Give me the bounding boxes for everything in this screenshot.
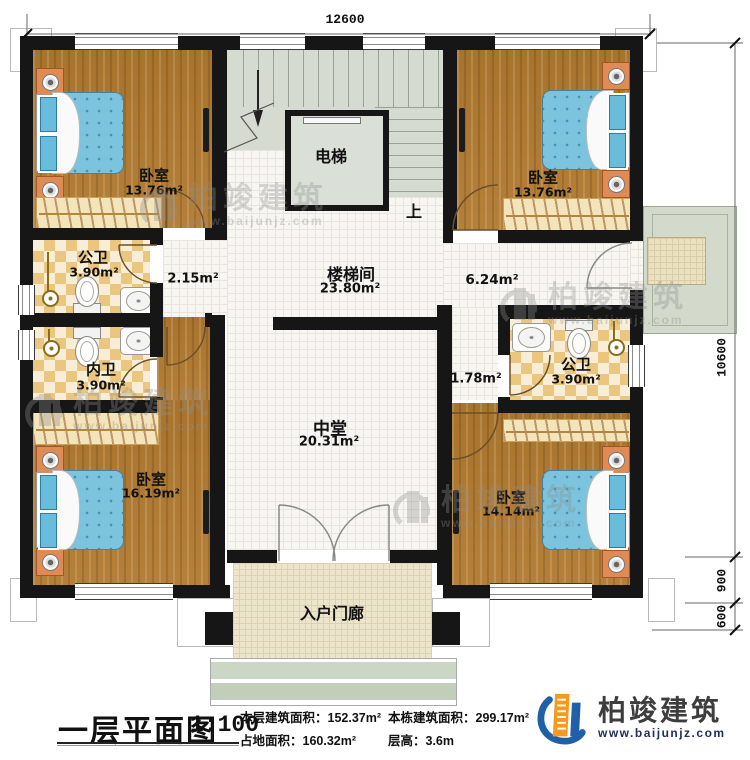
title-underline — [57, 742, 239, 747]
dimension-right: 10600 — [715, 328, 730, 388]
watermark-brand: 柏竣建筑 — [548, 283, 688, 313]
watermark: 柏竣建筑 www.baijunjz.com — [500, 282, 688, 328]
dimension-top: 12600 — [310, 12, 380, 27]
area-label: 2.15m² — [167, 272, 218, 287]
room-area: 20.31m² — [299, 435, 359, 450]
room-area: 16.19m² — [122, 486, 180, 501]
watermark-brand: 柏竣建筑 — [441, 486, 581, 516]
stat-total-area: 本栋建筑面积：299.17m² — [388, 707, 529, 726]
watermark-logo-icon — [393, 485, 433, 531]
watermark-url: www.baijunjz.com — [548, 313, 688, 327]
watermark-logo-icon — [25, 388, 65, 434]
company-name: 柏竣建筑 — [598, 696, 726, 727]
stat-floor-area: 本层建筑面积：152.37m² — [240, 707, 381, 726]
company-url: www.baijunjz.com — [598, 726, 726, 740]
watermark-brand: 柏竣建筑 — [73, 389, 213, 419]
watermark: 柏竣建筑 www.baijunjz.com — [25, 388, 213, 434]
stair-up-label: 上 — [406, 198, 422, 222]
floor-plan-page: 卧室 13.76m² 卧室 13.76m² 电梯 楼梯间 23.80m² 上 公… — [0, 0, 750, 760]
room-label: 入户门廊 — [300, 600, 364, 624]
watermark-logo-icon — [500, 282, 540, 328]
stat-floor-height: 层高：3.6m — [388, 730, 454, 749]
company-logo-icon — [536, 690, 590, 746]
stair-arrow — [224, 70, 274, 152]
room-area: 3.90m² — [551, 372, 600, 387]
dimension-ticks — [22, 29, 740, 635]
room-label: 电梯 — [315, 143, 347, 167]
watermark-brand: 柏竣建筑 — [188, 184, 328, 214]
room-label: 内卫 — [86, 359, 116, 380]
watermark-url: www.baijunjz.com — [73, 419, 213, 433]
watermark-logo-icon — [140, 183, 180, 229]
room-area: 13.76m² — [514, 185, 572, 200]
room-area: 23.80m² — [320, 282, 380, 297]
watermark: 柏竣建筑 www.baijunjz.com — [140, 183, 328, 229]
watermark-url: www.baijunjz.com — [188, 214, 328, 228]
company-logo: 柏竣建筑 www.baijunjz.com — [536, 690, 726, 746]
area-label: 1.78m² — [450, 372, 501, 387]
dimension-steps: 600 — [715, 587, 730, 647]
watermark: 柏竣建筑 www.baijunjz.com — [393, 485, 581, 531]
room-area: 3.90m² — [69, 265, 118, 280]
watermark-url: www.baijunjz.com — [441, 516, 581, 530]
stat-footprint: 占地面积：160.32m² — [240, 730, 356, 749]
